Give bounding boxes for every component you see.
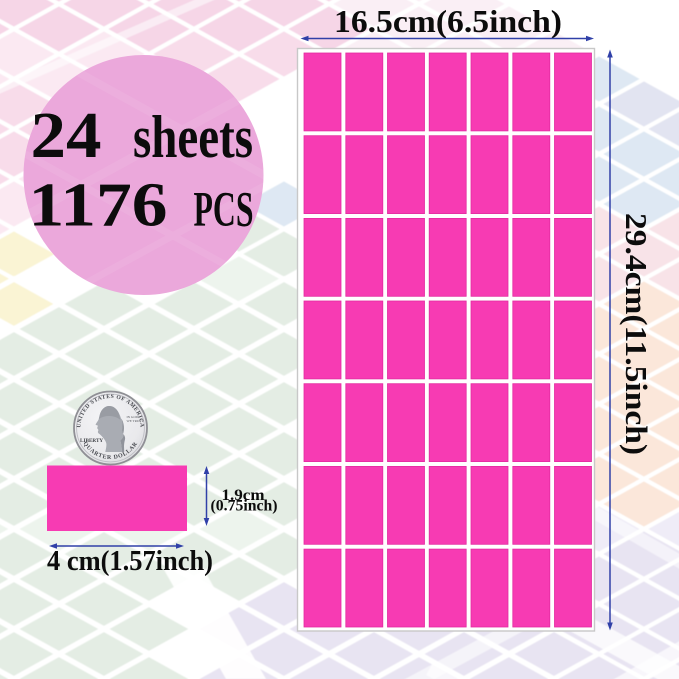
svg-text:29.4cm(11.5inch): 29.4cm(11.5inch) bbox=[619, 213, 654, 455]
svg-text:(0.75inch): (0.75inch) bbox=[211, 498, 278, 515]
svg-text:4 cm(1.57inch): 4 cm(1.57inch) bbox=[47, 546, 213, 577]
svg-text:PCS: PCS bbox=[194, 181, 254, 237]
svg-text:1176: 1176 bbox=[29, 172, 168, 240]
svg-text:sheets: sheets bbox=[133, 104, 253, 170]
svg-text:24: 24 bbox=[31, 99, 102, 172]
svg-text:LIBERTY: LIBERTY bbox=[80, 438, 103, 444]
svg-text:16.5cm(6.5inch): 16.5cm(6.5inch) bbox=[334, 3, 562, 39]
svg-text:WE TRUST: WE TRUST bbox=[127, 419, 145, 423]
